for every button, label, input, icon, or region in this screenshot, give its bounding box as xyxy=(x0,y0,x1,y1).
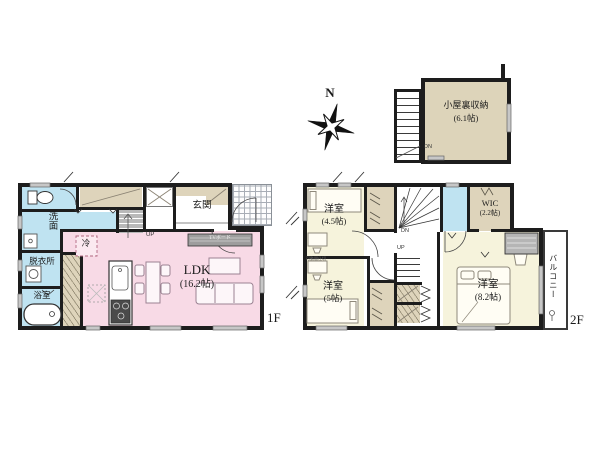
louver-closet-82 xyxy=(505,233,538,254)
stairs-2f-winder xyxy=(399,188,439,228)
plan-linework xyxy=(0,0,600,465)
attic-room-name: 小屋裏収納 xyxy=(443,101,488,111)
bedroom-82-size: (8.2帖) xyxy=(475,293,501,303)
entrance-label: 玄関 xyxy=(192,201,211,211)
bedroom-82-label: 洋室 xyxy=(478,279,499,291)
stairs-arrows xyxy=(124,146,420,238)
dining-set xyxy=(135,262,170,303)
furniture-1f xyxy=(24,191,253,325)
refrigerator-label: 冷 xyxy=(82,239,91,248)
attic-room-size: (6.1帖) xyxy=(454,114,479,123)
stool-82 xyxy=(514,254,527,265)
bedroom-5-label: 洋室 xyxy=(323,281,343,292)
washroom-label: 洗面 xyxy=(46,211,56,245)
washstand-icon xyxy=(24,234,37,248)
bedroom-45-label: 洋室 xyxy=(324,204,344,215)
kitchen-counter xyxy=(109,261,132,325)
floor-plan: 小屋裏収納 (6.1帖) DN N 玄関 LDK (16.2帖) 洗面 脱衣所 … xyxy=(0,0,600,465)
ldk-size: (16.2帖) xyxy=(180,279,214,290)
stairs-up-label-2f: UP xyxy=(397,245,405,251)
stairs-up-label-1f: UP xyxy=(146,232,154,239)
furniture-2f xyxy=(307,189,555,324)
washing-machine-icon xyxy=(26,266,41,282)
attic-dn-label: DN xyxy=(424,144,432,150)
bathtub-icon xyxy=(24,304,61,325)
wic-label: WIC xyxy=(482,199,499,208)
partition-note: 可動間仕切 xyxy=(306,257,326,261)
wic-size: (2.2帖) xyxy=(480,210,500,218)
tv-board-label: TVボード xyxy=(209,236,231,242)
balcony-label: バルコニー xyxy=(548,254,557,324)
compass-north-label: N xyxy=(325,86,334,100)
free-space-box xyxy=(88,285,105,302)
bedroom-5-size: (5帖) xyxy=(324,294,342,303)
toilet-1f-icon xyxy=(28,191,53,204)
compass-icon xyxy=(308,104,354,150)
floor-label-2f: 2F xyxy=(570,313,584,327)
door-v-marks xyxy=(74,189,489,257)
dressing-room-label: 脱衣所 xyxy=(29,257,55,266)
desk-45 xyxy=(308,233,327,253)
bathroom-label: 浴室 xyxy=(33,291,50,300)
desk-5 xyxy=(308,261,327,280)
bedroom-45-size: (4.5帖) xyxy=(322,217,347,226)
stairs-dn-label-2f: DN xyxy=(401,228,409,234)
floor-label-1f: 1F xyxy=(267,311,281,325)
kitchen-sink xyxy=(112,266,128,290)
ldk-label: LDK xyxy=(184,263,211,277)
coffee-table xyxy=(209,258,240,274)
